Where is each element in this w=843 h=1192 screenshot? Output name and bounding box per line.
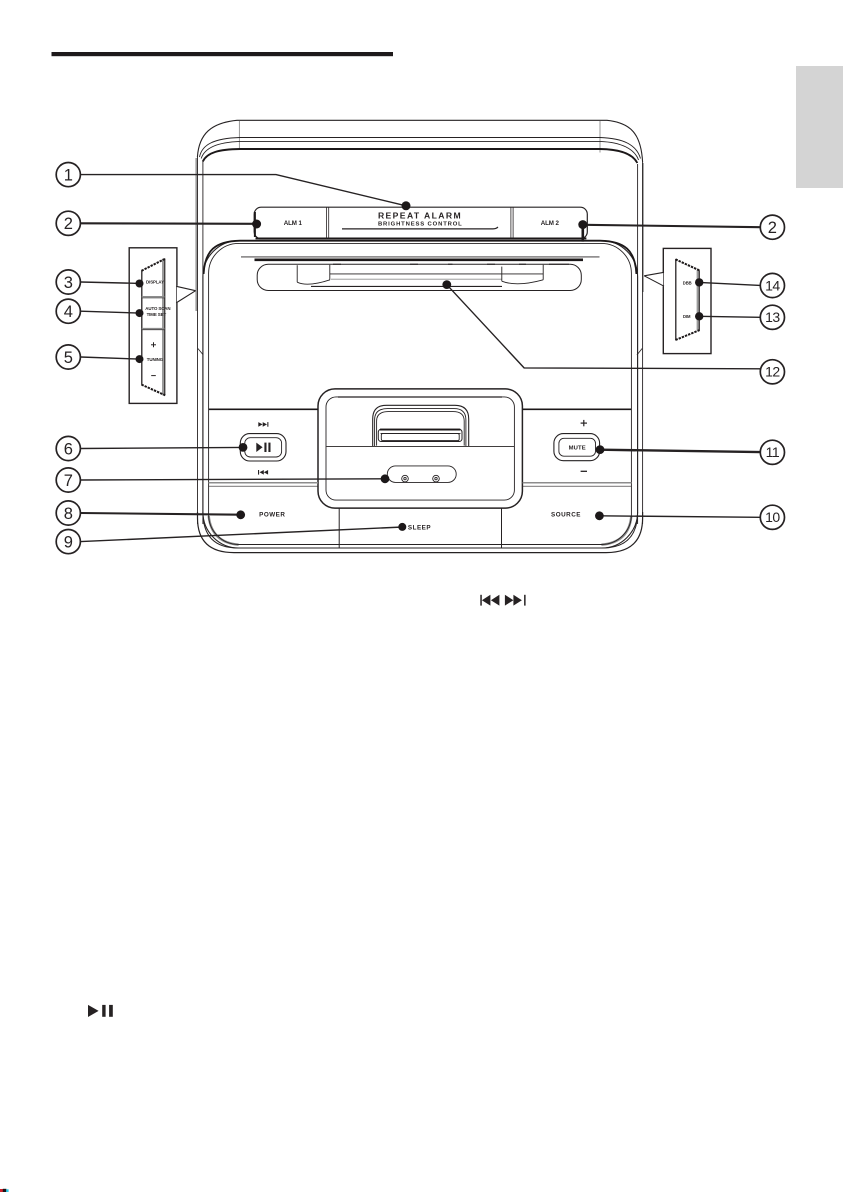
svg-text:ALM 2: ALM 2 [541, 220, 560, 227]
svg-text:8: 8 [64, 505, 73, 523]
svg-text:7: 7 [64, 472, 73, 490]
svg-text:SOURCE: SOURCE [551, 512, 581, 519]
svg-text:SLEEP: SLEEP [408, 524, 431, 531]
svg-text:4: 4 [64, 303, 73, 321]
svg-text:DBB: DBB [683, 281, 692, 286]
svg-text:BRIGHTNESS CONTROL: BRIGHTNESS CONTROL [378, 222, 463, 228]
svg-text:13: 13 [765, 309, 780, 325]
svg-text:5: 5 [64, 349, 73, 367]
svg-text:MUTE: MUTE [569, 446, 586, 452]
svg-text:10: 10 [765, 509, 780, 525]
svg-text:3: 3 [64, 274, 73, 292]
svg-text:DIM: DIM [683, 314, 691, 319]
svg-text:TIME SET: TIME SET [147, 312, 167, 317]
svg-text:1: 1 [64, 166, 73, 184]
svg-text:DISPLAY: DISPLAY [146, 280, 164, 285]
svg-text:TUNING: TUNING [147, 357, 164, 362]
svg-text:2: 2 [768, 219, 777, 237]
svg-text:6: 6 [64, 440, 73, 458]
svg-text:REPEAT ALARM: REPEAT ALARM [378, 211, 462, 221]
svg-text:9: 9 [64, 533, 73, 551]
svg-text:12: 12 [765, 364, 780, 380]
svg-text:ALM 1: ALM 1 [284, 220, 303, 227]
svg-text:11: 11 [766, 444, 780, 460]
svg-text:2: 2 [64, 215, 73, 233]
svg-text:14: 14 [765, 277, 780, 293]
svg-text:POWER: POWER [259, 512, 285, 519]
svg-text:AUTO SCAN: AUTO SCAN [145, 306, 170, 311]
